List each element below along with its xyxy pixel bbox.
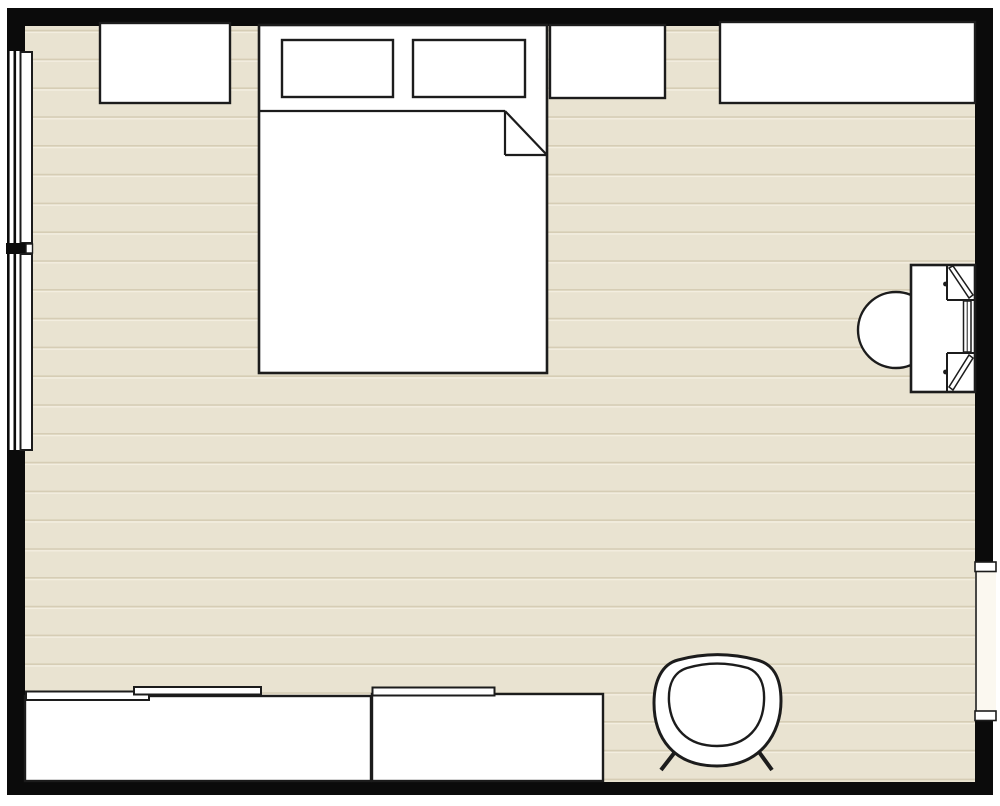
vanity-desk[interactable] <box>911 265 975 392</box>
floorplan-svg <box>0 0 1000 806</box>
wardrobe-right[interactable] <box>372 688 603 782</box>
dresser[interactable] <box>720 22 975 103</box>
nightstand-right[interactable] <box>550 25 665 98</box>
armchair[interactable] <box>654 655 781 770</box>
door-opening-right[interactable] <box>975 562 996 721</box>
nightstand-left[interactable] <box>100 23 230 103</box>
bed[interactable] <box>259 25 547 373</box>
wall-pier-left <box>6 243 33 254</box>
floorplan-canvas <box>0 0 1000 806</box>
wardrobe-left[interactable] <box>25 687 371 781</box>
